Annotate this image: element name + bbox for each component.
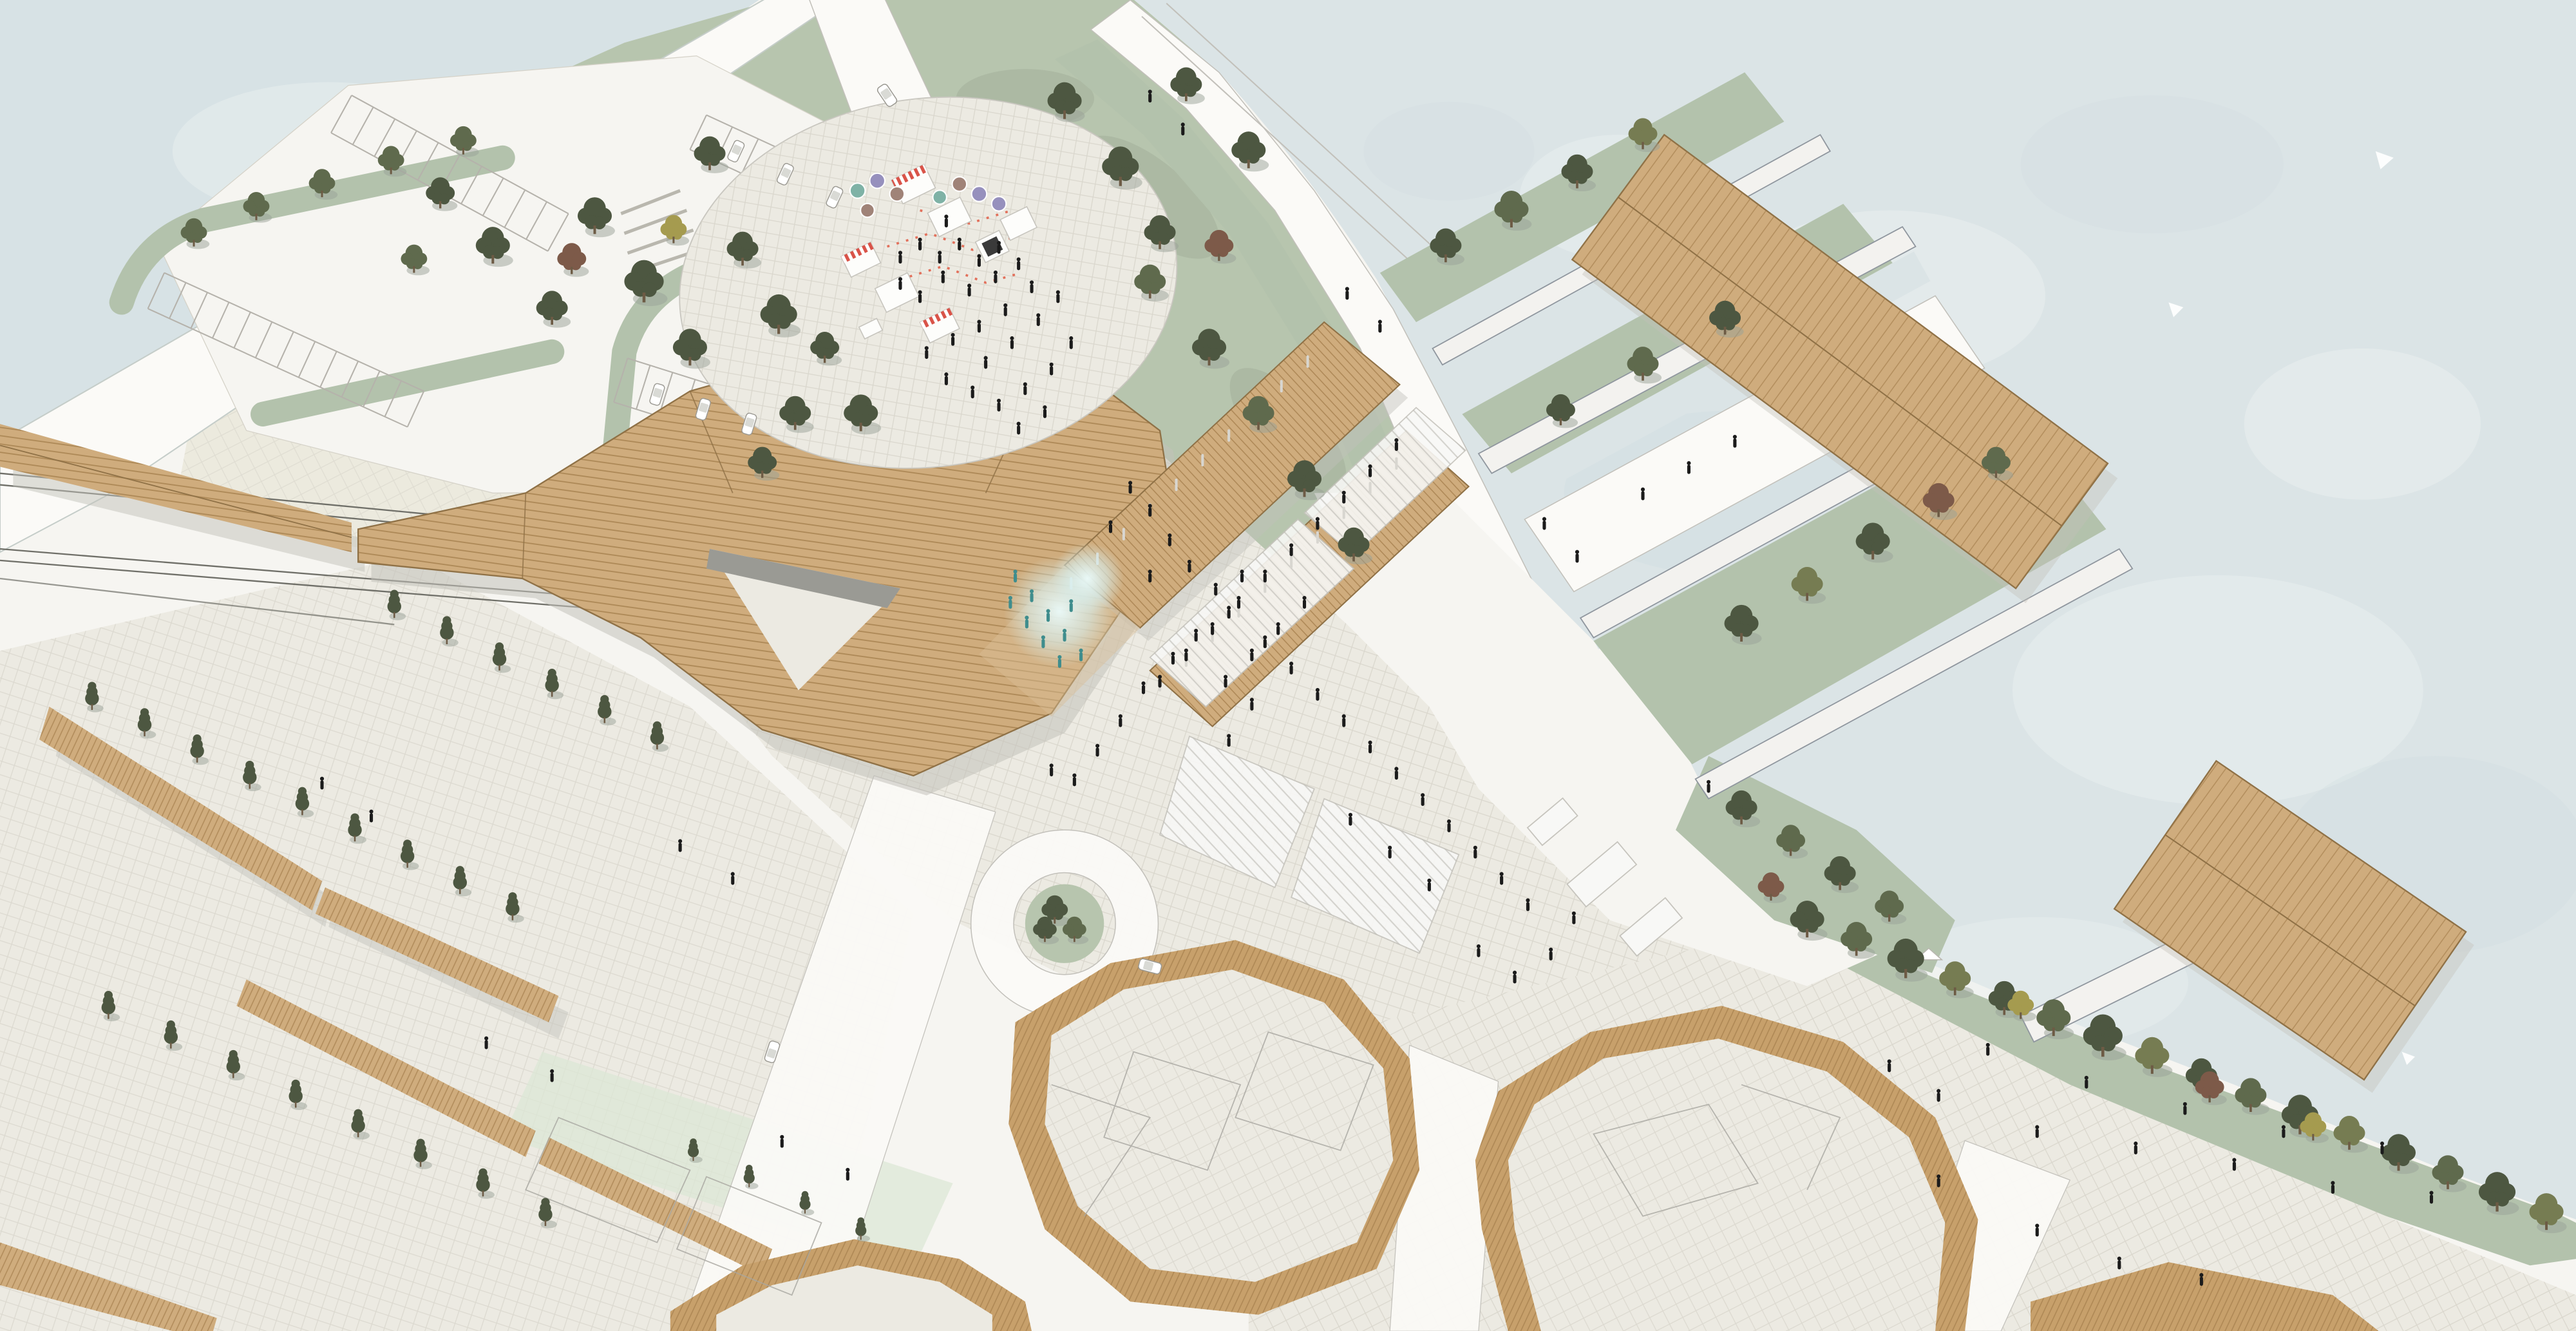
person	[1025, 616, 1028, 629]
person	[1056, 291, 1060, 303]
parasol	[933, 190, 946, 204]
person	[1128, 481, 1132, 493]
person	[1214, 583, 1218, 596]
person	[1349, 813, 1352, 826]
person	[1575, 550, 1579, 563]
person	[731, 872, 735, 885]
person	[2199, 1273, 2203, 1286]
person	[2331, 1181, 2334, 1194]
person	[1057, 655, 1061, 668]
person	[1095, 744, 1099, 757]
parasol	[972, 186, 987, 201]
person	[1263, 635, 1267, 648]
person	[484, 1037, 488, 1049]
person	[967, 283, 971, 296]
parasol	[870, 173, 885, 188]
person	[977, 254, 981, 267]
person	[1276, 622, 1280, 635]
parasol	[850, 183, 865, 198]
person	[1043, 405, 1046, 418]
person	[1171, 652, 1175, 665]
person	[958, 238, 961, 251]
person	[1069, 336, 1073, 349]
person	[1119, 714, 1122, 727]
person	[1181, 122, 1185, 135]
person	[2282, 1125, 2286, 1138]
mist-cloud	[1052, 542, 1124, 615]
person	[2429, 1191, 2433, 1203]
person	[1148, 570, 1152, 582]
person	[2085, 1076, 2088, 1089]
person	[1168, 533, 1171, 546]
person	[1345, 287, 1349, 300]
person	[1017, 422, 1021, 435]
person	[1036, 313, 1040, 326]
person	[997, 241, 1001, 254]
person	[1368, 464, 1372, 477]
person	[1302, 596, 1306, 609]
person	[994, 271, 998, 283]
person	[1707, 780, 1710, 793]
person	[1063, 629, 1066, 642]
person	[1342, 491, 1346, 504]
person	[1368, 740, 1372, 753]
person	[1986, 1043, 1990, 1056]
person	[1289, 543, 1293, 556]
person	[1427, 879, 1431, 892]
person	[1069, 599, 1073, 612]
person	[1250, 698, 1254, 711]
person	[938, 251, 942, 263]
person	[971, 385, 974, 398]
person	[1184, 649, 1188, 662]
person	[1477, 944, 1481, 957]
person	[1388, 846, 1392, 859]
person	[1072, 774, 1076, 787]
person	[1003, 303, 1007, 316]
person	[1227, 606, 1231, 618]
person	[977, 320, 981, 332]
person	[1549, 948, 1553, 961]
person	[1108, 521, 1112, 533]
person	[1079, 649, 1083, 662]
person	[1542, 517, 1546, 530]
person	[2117, 1256, 2121, 1269]
person	[1148, 504, 1152, 517]
person	[1046, 609, 1050, 622]
person	[2035, 1223, 2039, 1236]
person	[951, 333, 955, 346]
person	[1394, 767, 1398, 780]
person	[1378, 320, 1382, 332]
person	[1211, 622, 1215, 635]
person	[1394, 438, 1398, 451]
person	[898, 251, 902, 263]
person	[898, 277, 902, 290]
parasol	[992, 196, 1006, 211]
person	[944, 372, 948, 385]
person	[997, 399, 1001, 412]
person	[1316, 688, 1320, 701]
parasol	[860, 204, 874, 217]
person	[1316, 517, 1320, 530]
person	[918, 238, 922, 251]
person	[1937, 1174, 1940, 1187]
person	[1050, 763, 1054, 776]
person	[2380, 1142, 2384, 1154]
person	[1641, 488, 1645, 501]
person	[1041, 635, 1045, 648]
person	[1526, 898, 1529, 911]
person	[1421, 793, 1425, 806]
person	[1572, 912, 1576, 924]
person	[944, 215, 948, 227]
person	[1030, 280, 1034, 293]
person	[1473, 846, 1477, 859]
site-plan-canvas	[0, 0, 2576, 1331]
person	[2134, 1142, 2137, 1154]
masterplan-rendering	[0, 0, 2576, 1331]
parasol	[890, 187, 904, 201]
person	[2035, 1125, 2039, 1138]
person	[1009, 596, 1012, 609]
person	[846, 1168, 849, 1181]
person	[1289, 662, 1293, 675]
parasol	[952, 177, 967, 191]
person	[1263, 570, 1267, 582]
person	[1342, 714, 1346, 727]
person	[1224, 675, 1227, 687]
person	[1017, 257, 1021, 270]
person	[1733, 435, 1737, 448]
person	[941, 271, 945, 283]
person	[1240, 570, 1244, 582]
person	[925, 346, 929, 359]
person	[1148, 90, 1152, 102]
person	[1023, 382, 1027, 395]
person	[780, 1135, 784, 1148]
person	[1500, 872, 1504, 885]
person	[678, 839, 682, 852]
person	[1447, 819, 1451, 832]
person	[1236, 596, 1240, 609]
person	[2232, 1158, 2236, 1171]
person	[1158, 675, 1162, 687]
person	[1513, 971, 1517, 984]
person	[369, 810, 373, 823]
person	[1937, 1089, 1940, 1102]
person	[1188, 560, 1191, 573]
person	[550, 1069, 554, 1082]
person	[320, 777, 324, 790]
person	[918, 291, 922, 303]
person	[984, 356, 988, 369]
person	[1013, 570, 1017, 582]
person	[1227, 734, 1231, 747]
person	[1141, 682, 1145, 694]
person	[1687, 461, 1690, 474]
person	[1194, 629, 1198, 642]
person	[1888, 1059, 1891, 1072]
person	[1030, 589, 1034, 602]
person	[1250, 649, 1254, 662]
person	[2183, 1102, 2187, 1115]
person	[1010, 336, 1014, 349]
person	[1050, 363, 1054, 376]
